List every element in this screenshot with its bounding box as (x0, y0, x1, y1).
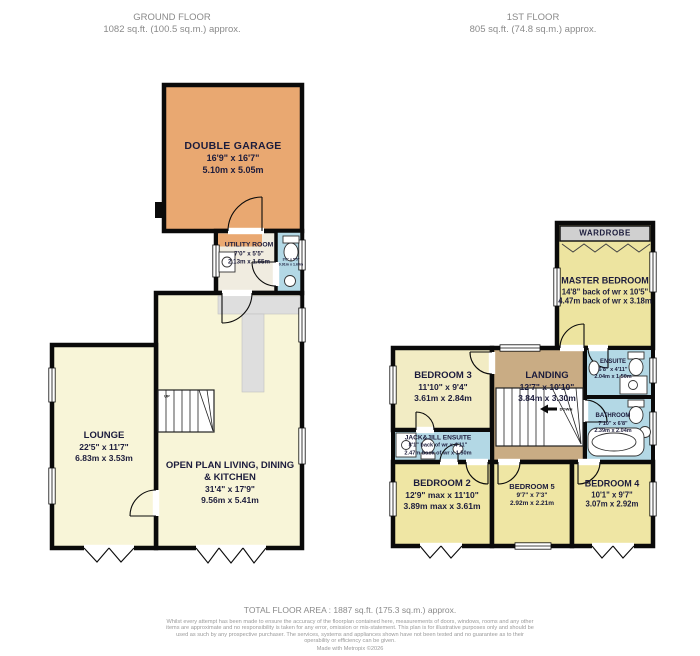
footer: TOTAL FLOOR AREA : 1887 sq.ft. (175.3 sq… (0, 605, 700, 652)
ground-floor-area: 1082 sq.ft. (100.5 sq.m.) approx. (42, 24, 302, 36)
label-bathroom: BATHROOM 7'10" x 6'8" 2.39m x 2.04m (594, 413, 631, 435)
label-landing: LANDING 12'7" x 10'10" 3.84m x 3.30m (518, 370, 576, 404)
label-bedroom5: BEDROOM 5 9'7" x 7'3" 2.92m x 2.21m (509, 482, 554, 508)
window-icon (390, 366, 396, 404)
first-floor-area: 805 sq.ft. (74.8 sq.m.) approx. (403, 24, 663, 36)
window-icon (500, 345, 540, 351)
label-lounge: LOUNGE 22'5" x 11'7" 6.83m x 3.53m (75, 430, 133, 464)
floorplan-graphic (0, 0, 700, 656)
window-icon (49, 368, 55, 402)
first-floor-title: 1ST FLOOR (403, 12, 663, 24)
ground-floor-title: GROUND FLOOR (42, 12, 302, 24)
window-icon (299, 308, 305, 342)
disclaimer-text: Whilst every attempt has been made to en… (166, 619, 534, 645)
label-utility-room: UTILITY ROOM 7'0" x 5'5" 2.13m x 1.65m (225, 242, 274, 267)
label-ensuite: ENSUITE 6'8" x 4'11" 2.04m x 1.50m (594, 359, 631, 381)
stairs-up-label: UP (164, 394, 170, 399)
label-jack-jill-ensuite: JACK&JILL ENSUITE 8'1" back of wr x 4'11… (404, 435, 471, 458)
window-icon (650, 412, 656, 445)
window-icon (650, 482, 656, 516)
label-wc: 3'0" x 5'5" 0.91m x 1.65m (279, 257, 303, 266)
total-floor-area: TOTAL FLOOR AREA : 1887 sq.ft. (175.3 sq… (0, 605, 700, 615)
first-floor-header: 1ST FLOOR 805 sq.ft. (74.8 sq.m.) approx… (403, 12, 663, 36)
label-master-bedroom: MASTER BEDROOM 14'8" back of wr x 10'5" … (558, 275, 652, 306)
window-icon (213, 245, 219, 277)
label-bedroom4: BEDROOM 4 10'1" x 9'7" 3.07m x 2.92m (585, 478, 640, 509)
window-icon (650, 358, 656, 383)
window-icon (299, 428, 305, 464)
label-wardrobe: WARDROBE (579, 229, 631, 238)
sink-icon (285, 276, 296, 287)
window-icon (49, 468, 55, 504)
wall-pier (155, 202, 164, 218)
stairs-down-label: DOWN (560, 407, 573, 412)
label-bedroom2: BEDROOM 2 12'9" max x 11'10" 3.89m max x… (403, 478, 480, 512)
ground-floor-header: GROUND FLOOR 1082 sq.ft. (100.5 sq.m.) a… (42, 12, 302, 36)
label-double-garage: DOUBLE GARAGE 16'9" x 16'7" 5.10m x 5.05… (184, 140, 281, 176)
window-icon (515, 543, 551, 549)
window-icon (390, 482, 396, 516)
label-bedroom3: BEDROOM 3 11'10" x 9'4" 3.61m x 2.84m (414, 370, 472, 404)
label-open-plan: OPEN PLAN LIVING, DINING & KITCHEN 31'4"… (166, 460, 294, 506)
credit-text: Made with Metropix ©2026 (0, 646, 700, 652)
floorplan-canvas: GROUND FLOOR 1082 sq.ft. (100.5 sq.m.) a… (0, 0, 700, 656)
